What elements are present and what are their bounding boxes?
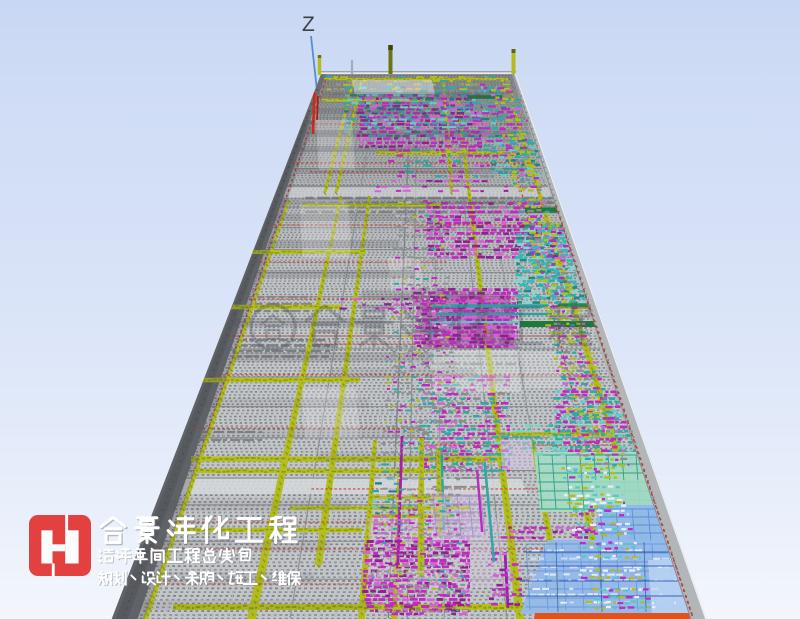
svg-text:Z: Z [302,13,315,36]
